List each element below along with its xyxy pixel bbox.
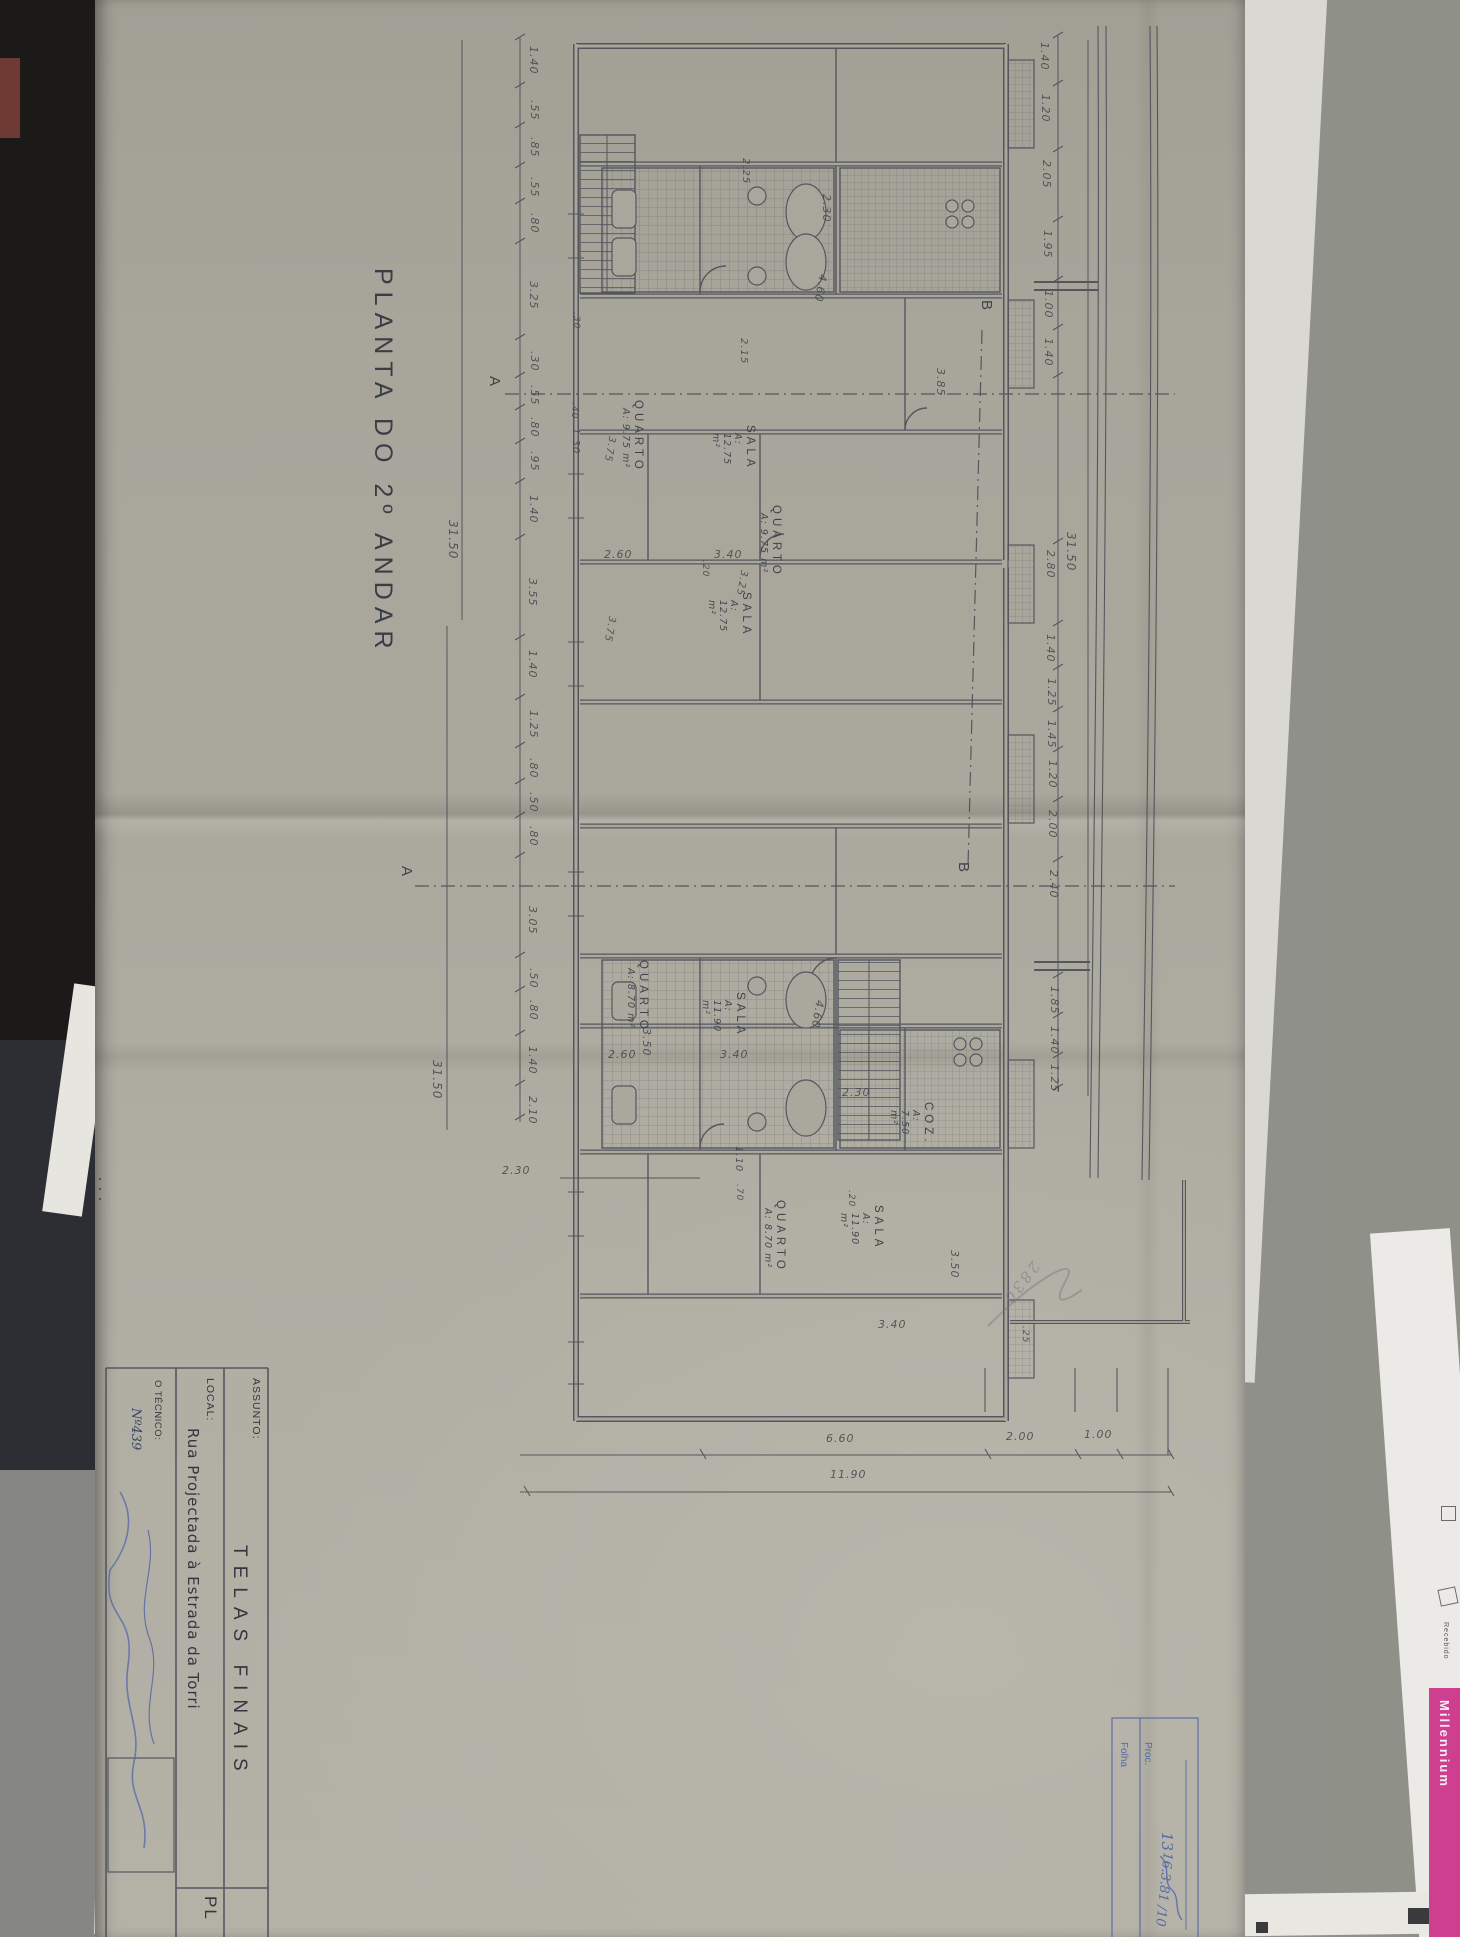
dimension-value: 2.60 [608,1048,637,1061]
dimension-value: 3.25 [527,281,540,310]
room-label: COZ. A: 7.50 m² [922,1102,934,1145]
section-letter: A [398,866,415,877]
room-label: QUARTO A: 8.70 m² [774,1200,786,1273]
dimension-value: 1.40 [1042,338,1055,367]
dimension-value: 3.50 [640,1028,653,1057]
titleblock-tecnico-number: Nº439 [128,1408,143,1450]
dimension-value: 1.20 [1039,94,1052,123]
dimension-value: 2.30 [502,1164,531,1177]
room-name: SALA [734,992,746,1037]
dimension-value: 1.25 [1048,1064,1061,1093]
dimension-value: 2.05 [1040,160,1053,189]
dimension-value: 3.85 [934,368,947,397]
plan-linework [0,0,1460,1937]
dimension-value: .55 [528,177,541,198]
room-area: A: 9.75 m² [758,513,769,573]
room-name: QUARTO [770,505,782,578]
dimension-value: .95 [528,451,541,472]
room-name: SALA [744,425,756,470]
titleblock-assunto-value: TELAS FINAIS [228,1545,250,1780]
dimension-value: .80 [527,758,540,779]
room-name: SALA [872,1205,884,1250]
dimension-value: 3.05 [526,906,539,935]
dimension-value: 1.40 [526,650,539,679]
dimension-value: .25 [1020,1326,1030,1343]
dimension-value: 1.85 [1048,986,1061,1015]
dimension-value: 1.40 [526,1046,539,1075]
dimension-value: .80 [527,1000,540,1021]
dimension-value: 1.40 [1044,634,1057,663]
dimension-value: 1.00 [1084,1428,1113,1441]
stamp-proc-label: Proc. [1142,1742,1153,1765]
dimension-value: .50 [527,792,540,813]
dimension-value: 2.30 [842,1086,871,1099]
dimension-value: .50 [527,968,540,989]
room-area: A: 7.50 m² [888,1110,921,1145]
room-area: A: 12.75 m² [710,433,743,470]
dimension-value: 1.25 [527,710,540,739]
room-label: SALA A: 11.90 m² [872,1205,884,1250]
titleblock-local-value: Rua Projectada à Estrada da Torri [184,1428,202,1710]
dimension-value: 1.10 [733,1146,744,1172]
titleblock-assunto-label: ASSUNTO: [250,1378,262,1439]
dimension-value: 1.40 [527,46,540,75]
dimension-value: 11.90 [830,1468,867,1481]
dimension-value: 2.10 [526,1096,539,1125]
room-name: QUARTO [637,960,649,1033]
dimension-value: 2.80 [1044,550,1057,579]
dimension-value: 2.15 [738,338,749,364]
dimension-value: 6.60 [826,1432,855,1445]
room-area: A: 12.75 m² [706,600,739,637]
dimension-value: .80 [527,826,540,847]
dimension-value: 2.60 [604,548,633,561]
dimension-value: .30 [571,312,581,329]
dimension-value: 31.50 [430,1060,444,1099]
room-name: QUARTO [632,400,644,473]
room-name: QUARTO [774,1200,786,1273]
dimension-value: 2.40 [1047,870,1060,899]
titleblock-local-label: LOCAL: [204,1378,216,1421]
titleblock-sheet-code: PL [200,1896,220,1921]
room-area: A: 11.90 m² [838,1213,871,1250]
dimension-value: 1.40 [1038,42,1051,71]
stamp-folha-value: 13 [1158,1832,1176,1851]
dimension-value: 2.30 [820,194,833,223]
dimension-value: 3.40 [720,1048,749,1061]
room-label: QUARTO A: 8.70 m² [637,960,649,1033]
dimension-value: .80 [528,213,541,234]
dimension-value: 1.25 [1045,678,1058,707]
dimension-value: .80 [528,417,541,438]
dimension-value: 1.95 [1041,230,1054,259]
dimension-value: 1.40 [527,495,540,524]
room-area: A: 9.75 m² [620,408,631,468]
dimension-value: 31.50 [1064,532,1078,571]
dimension-value: .70 [734,1184,744,1201]
room-label: SALA A: 12.75 m² [740,592,752,637]
dimension-value: .40 [569,402,579,419]
section-letter: B [978,300,995,311]
dimension-value: .85 [528,137,541,158]
dimension-value: 2.00 [1006,1430,1035,1443]
room-area: A: 8.70 m² [762,1208,773,1268]
dimension-value: 2.25 [740,158,751,184]
dimension-value: 1.20 [1046,760,1059,789]
dimension-value: 1.30 [570,428,581,454]
dimension-value: 3.40 [714,548,743,561]
dimension-value: .55 [528,385,541,406]
section-letter: B [955,862,972,873]
drawing-title: PLANTA DO 2º ANDAR [368,268,397,656]
dimension-value: .30 [528,351,541,372]
dimension-value: 31.50 [446,520,460,559]
section-letter: A [486,376,503,387]
dimension-value: 1.45 [1045,720,1058,749]
room-label: SALA A: 12.75 m² [744,425,756,470]
dimension-value: 3.50 [948,1250,961,1279]
room-name: COZ. [922,1102,934,1145]
room-label: QUARTO A: 9.75 m² [770,505,782,578]
photo-of-floor-plan: { "title": { "text": "PLANTA DO 2º ANDAR… [0,0,1460,1937]
room-name: SALA [740,592,752,637]
dimension-value: 2.00 [1046,810,1059,839]
dimension-value: 1.40 [1048,1026,1061,1055]
titleblock-tecnico-label: O TÉCNICO: [152,1380,163,1440]
room-label: SALA A: 11.90 m² [734,992,746,1037]
stamp-folha-label: Folha [1118,1742,1129,1767]
room-label: QUARTO A: 9.75 m² [632,400,644,473]
dimension-value: .55 [528,100,541,121]
dimension-value: 3.40 [878,1318,907,1331]
dimension-value: .20 [700,560,710,577]
room-area: A: 8.70 m² [625,968,636,1028]
dimension-value: .20 [846,1190,856,1207]
room-area: A: 11.90 m² [700,1000,733,1037]
dimension-value: 3.55 [526,578,539,607]
dimension-value: 1.00 [1042,290,1055,319]
